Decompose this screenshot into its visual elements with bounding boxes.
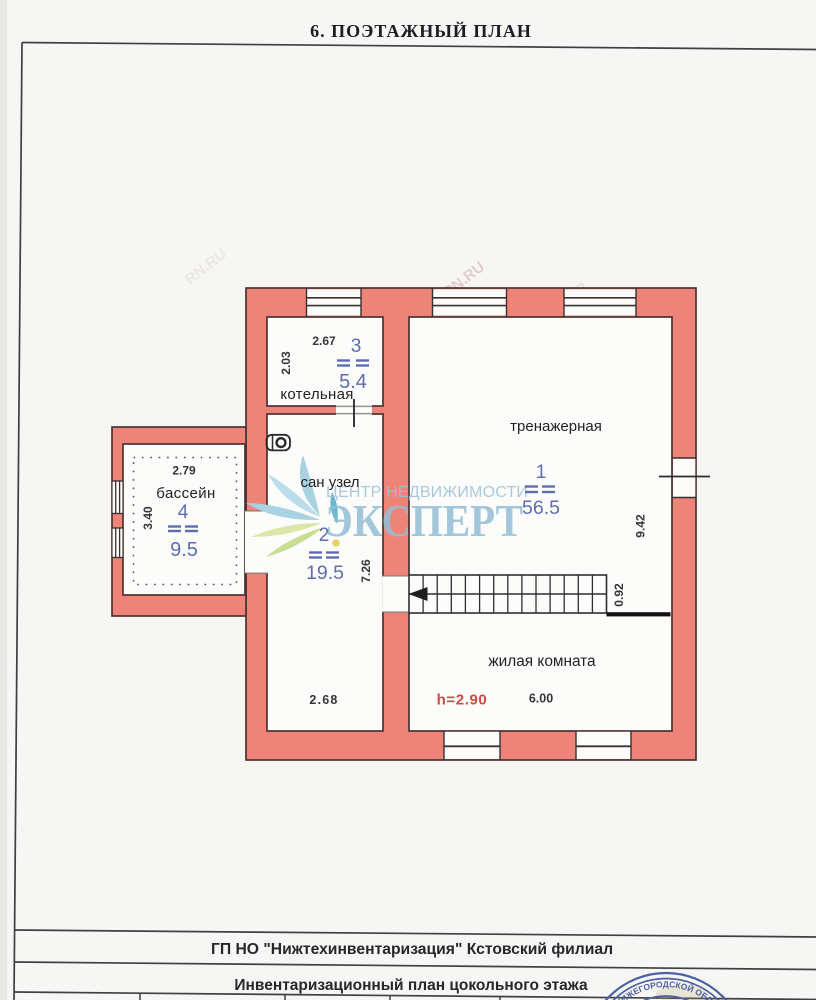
svg-text:7.26: 7.26 bbox=[359, 559, 373, 583]
svg-text:4: 4 bbox=[178, 502, 189, 523]
svg-text:19.5: 19.5 bbox=[306, 562, 344, 584]
svg-text:3.40: 3.40 bbox=[141, 506, 155, 530]
svg-text:2.68: 2.68 bbox=[309, 693, 338, 707]
svg-text:2.79: 2.79 bbox=[172, 464, 196, 478]
svg-text:h=2.90: h=2.90 bbox=[437, 692, 488, 709]
svg-text:9.42: 9.42 bbox=[634, 514, 648, 538]
svg-text:0.92: 0.92 bbox=[612, 583, 626, 607]
svg-text:2: 2 bbox=[319, 525, 330, 546]
svg-text:6. ПОЭТАЖНЫЙ ПЛАН: 6. ПОЭТАЖНЫЙ ПЛАН bbox=[310, 20, 532, 41]
svg-text:бассейн: бассейн bbox=[156, 485, 215, 502]
svg-text:Инвентаризационный план цоколь: Инвентаризационный план цокольного этажа bbox=[234, 977, 588, 994]
svg-text:3: 3 bbox=[351, 336, 362, 357]
svg-text:тренажерная: тренажерная bbox=[510, 418, 602, 435]
svg-text:56.5: 56.5 bbox=[522, 497, 560, 519]
svg-text:2.03: 2.03 bbox=[279, 351, 293, 375]
svg-text:ЭКСПЕРТ: ЭКСПЕРТ bbox=[325, 495, 523, 546]
svg-text:5.4: 5.4 bbox=[339, 371, 367, 393]
svg-text:ГП НО "Нижтехинвентаризация": ГП НО "Нижтехинвентаризация" Кстовский ф… bbox=[211, 941, 613, 958]
svg-text:жилая комната: жилая комната bbox=[488, 653, 596, 670]
svg-text:сан узел: сан узел bbox=[300, 474, 359, 491]
svg-text:6.00: 6.00 bbox=[529, 692, 553, 706]
svg-text:1: 1 bbox=[536, 462, 547, 483]
svg-text:9.5: 9.5 bbox=[170, 539, 198, 561]
svg-text:2.67: 2.67 bbox=[312, 334, 336, 348]
